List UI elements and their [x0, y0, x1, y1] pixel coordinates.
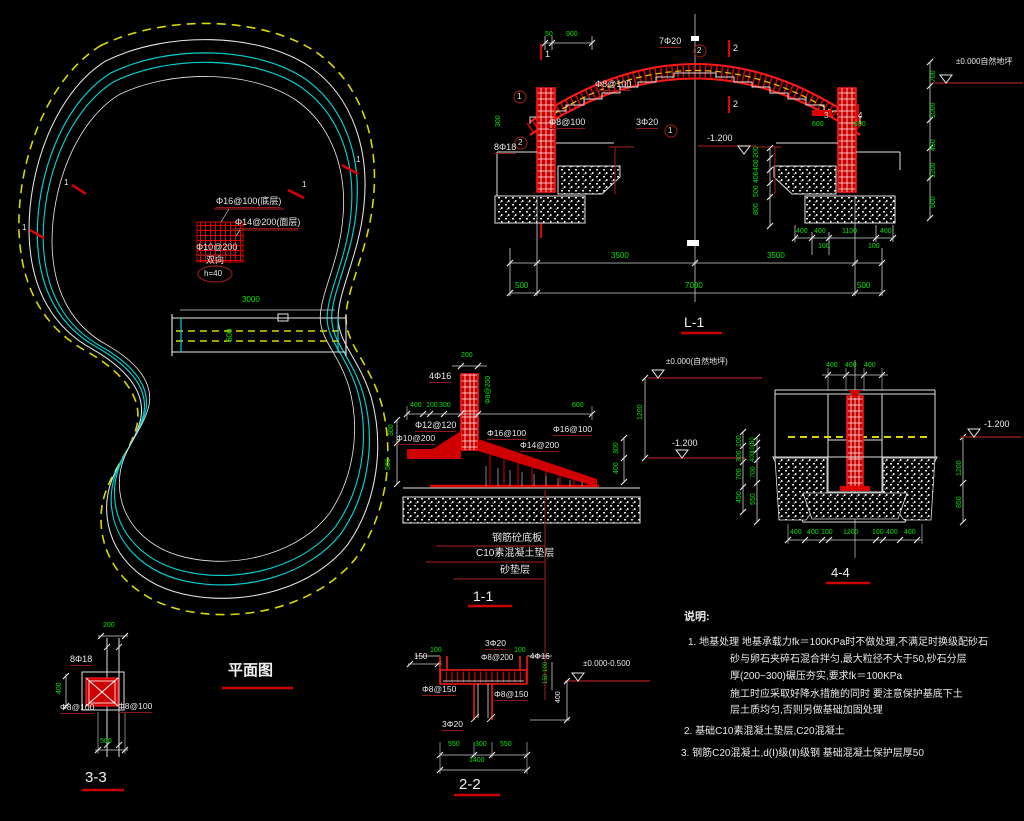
rebar-label: 4Φ16 — [530, 653, 550, 661]
rebar-label: Φ8@100 — [118, 702, 152, 713]
dim: 500 — [930, 196, 937, 208]
dim: 400 — [845, 362, 857, 369]
plan-rebar-dist-label: Φ10@200 — [196, 243, 237, 252]
dim: 500 — [100, 738, 112, 745]
dim: 800 — [753, 203, 760, 215]
dim: 400 — [613, 462, 620, 474]
cut-label: 2 — [733, 44, 738, 53]
material-label: C10素混凝土垫层 — [476, 549, 554, 559]
section-mark: 1 — [22, 224, 26, 232]
section-3-3-title: 3-3 — [85, 770, 107, 785]
dim: 100 — [736, 435, 743, 447]
dim: 400 — [814, 228, 826, 235]
dim: 700 — [930, 70, 937, 82]
rebar-label: Φ8@200 — [481, 654, 513, 662]
dim: 200 — [753, 146, 760, 158]
dim: 150 — [543, 674, 549, 684]
level-label: ±0.000自然地坪 — [956, 58, 1012, 66]
rebar-label: 8Φ18 — [70, 655, 92, 666]
section-1-1-title: 1-1 — [473, 589, 493, 603]
note-line: 2. 基础C10素混凝土垫层,C20混凝土 — [684, 727, 845, 737]
plan-both-ways-label: 双向 — [206, 256, 224, 265]
dim: 400 — [753, 171, 760, 183]
cut-label: 2 — [733, 100, 738, 109]
dim: 3500 — [767, 252, 785, 260]
dim: 900 — [566, 31, 578, 38]
dim: 100 — [426, 402, 438, 409]
level-label: -1.200 — [672, 439, 698, 448]
section-mark: 1 — [356, 156, 360, 164]
dim: 300 — [388, 424, 395, 436]
rebar-label: Φ8@100 — [60, 703, 94, 714]
rebar-label: Φ8@200 — [485, 376, 492, 404]
dim: 150 — [414, 653, 427, 661]
section-4-4 — [754, 360, 1022, 583]
section-2-2-title: 2-2 — [459, 777, 481, 792]
pond-water-line-1 — [37, 53, 369, 585]
dim: 550 — [500, 741, 512, 748]
rebar-label: 3Φ20 — [442, 720, 463, 731]
rebar-label: Φ8@150 — [494, 690, 528, 701]
rebar-label: Φ10@200 — [396, 434, 435, 445]
dim: 850 — [956, 496, 963, 508]
section-1-1 — [394, 363, 762, 700]
dim: 500 — [385, 458, 392, 470]
plan-dim: 600 — [226, 329, 234, 342]
note-line: 层土质均匀,否则另做基础加固处理 — [730, 706, 883, 716]
dim: 500 — [753, 185, 760, 197]
dim: 300 — [736, 450, 743, 462]
rebar-label: 8Φ18 — [494, 143, 516, 154]
material-label: 钢筋砼底板 — [492, 534, 542, 544]
rebar-label: Φ8@150 — [422, 685, 456, 696]
plan-rebar-top-label: Φ14@200(面层) — [235, 218, 300, 229]
section-4-4-title: 4-4 — [831, 566, 850, 579]
bubble-no: 2 — [697, 47, 701, 55]
dim: 100 — [868, 243, 880, 250]
note-line: 砂与卵石夹碎石混合拌匀,最大粒径不大于50,砂石分层 — [730, 655, 967, 665]
rebar-label: 3Φ20 — [485, 639, 506, 650]
plan-title: 平面图 — [228, 663, 273, 678]
pond-outer-boundary — [19, 23, 388, 614]
dim: 400 — [750, 452, 756, 462]
dim: 200 — [103, 622, 115, 629]
rebar-label: Φ14@200 — [520, 441, 559, 452]
dim: 300 — [439, 402, 451, 409]
dim: 400 — [796, 228, 808, 235]
rebar-label: Φ8@100 — [595, 80, 631, 91]
plan-section-ticks — [30, 165, 358, 238]
dim: 100 — [872, 529, 884, 536]
dim: 400 — [886, 529, 898, 536]
dim: 600 — [854, 121, 866, 128]
cut-label: 4 — [858, 112, 862, 120]
notes-title: 说明: — [684, 612, 710, 623]
note-line: 厚(200~300)碾压夯实,要求fk＝100KPa — [730, 672, 902, 682]
pond-edge-inner — [52, 76, 355, 561]
dim: 100 — [821, 529, 833, 536]
rebar-label: Φ8@100 — [549, 118, 585, 129]
rebar-label: 7Φ20 — [659, 37, 681, 48]
dim: 7000 — [685, 282, 703, 290]
rebar-label: 4Φ16 — [429, 372, 451, 383]
dim: 400 — [880, 228, 892, 235]
cad-drawing-canvas[interactable]: 平面图 L-1 1-1 4-4 3-3 2-2 说明: 1. 地基处理 地基承载… — [0, 0, 1024, 821]
dim: 1200 — [843, 529, 859, 536]
rebar-label: 3Φ20 — [636, 118, 658, 129]
dim: 1400 — [469, 757, 485, 764]
plan-thickness-label: h=40 — [204, 270, 222, 278]
plan-view — [19, 23, 388, 614]
level-label: ±0.000-0.500 — [583, 660, 630, 668]
pond-edge-outer — [29, 40, 378, 599]
cut-label: 1 — [545, 50, 550, 59]
dim: 100 — [543, 662, 549, 672]
dim: 400 — [826, 362, 838, 369]
level-label: -1.200 — [984, 420, 1010, 429]
dim: 700 — [736, 468, 743, 480]
level-label: -1.200 — [707, 134, 733, 143]
pond-water-line-2 — [43, 62, 363, 575]
dim: 400 — [56, 682, 63, 694]
section-mark: 1 — [302, 181, 306, 189]
dim: 1000 — [930, 102, 937, 118]
section-mark: 1 — [64, 179, 68, 187]
bubble-no: 1 — [517, 93, 521, 101]
dim: 1100 — [842, 228, 857, 235]
dim: 3500 — [611, 252, 629, 260]
note-line: 施工时应采取好降水措施的同时 要注意保护基底下土 — [730, 690, 963, 700]
dim: 500 — [857, 282, 870, 290]
level-label: ±0.000(自然地坪) — [666, 358, 728, 366]
dim: 400 — [790, 529, 802, 536]
dim: 400 — [753, 159, 760, 171]
dim: 450 — [736, 491, 743, 503]
dim: 600 — [572, 402, 584, 409]
dim: 300 — [495, 115, 502, 127]
dim: 550 — [750, 493, 757, 505]
note-line: 3. 钢筋C20混凝土,d(Ⅰ)级(Ⅱ)级钢 基础混凝土保护层厚50 — [681, 749, 924, 759]
dim: 100 — [430, 647, 442, 654]
dim: 1200 — [637, 404, 644, 420]
material-label: 砂垫层 — [500, 566, 530, 576]
dim: 450 — [930, 139, 937, 151]
plan-dim: 3000 — [242, 296, 260, 304]
cut-label: 3 — [824, 112, 828, 120]
dim: 50 — [545, 31, 553, 38]
dim: 400 — [410, 402, 422, 409]
dim: 500 — [515, 282, 528, 290]
dim: 700 — [750, 466, 757, 478]
dim: 1200 — [956, 460, 963, 476]
bubble-no: 2 — [518, 139, 522, 147]
dim: 400 — [807, 529, 819, 536]
dim: 200 — [461, 352, 473, 359]
dim: 300 — [613, 442, 620, 454]
bubble-no: 1 — [668, 127, 672, 135]
section-l1-title: L-1 — [684, 315, 704, 329]
dim: 300 — [475, 741, 487, 748]
dim: 100 — [818, 243, 830, 250]
dim: 400 — [904, 529, 916, 536]
dim: 400 — [864, 362, 876, 369]
dim: 550 — [448, 741, 460, 748]
rebar-label: Φ16@100 — [487, 429, 526, 440]
dim: 400 — [555, 691, 562, 703]
dim: 600 — [812, 121, 824, 128]
dim: 100 — [514, 647, 526, 654]
dim: 1200 — [930, 162, 937, 178]
note-line: 1. 地基处理 地基承载力fk＝100KPa时不做处理,不满足时换级配砂石 — [688, 638, 988, 648]
rebar-label: Φ16@100 — [553, 425, 592, 436]
plan-rebar-bottom-label: Φ16@100(底层) — [216, 197, 281, 208]
rebar-label: Φ12@120 — [415, 421, 456, 432]
